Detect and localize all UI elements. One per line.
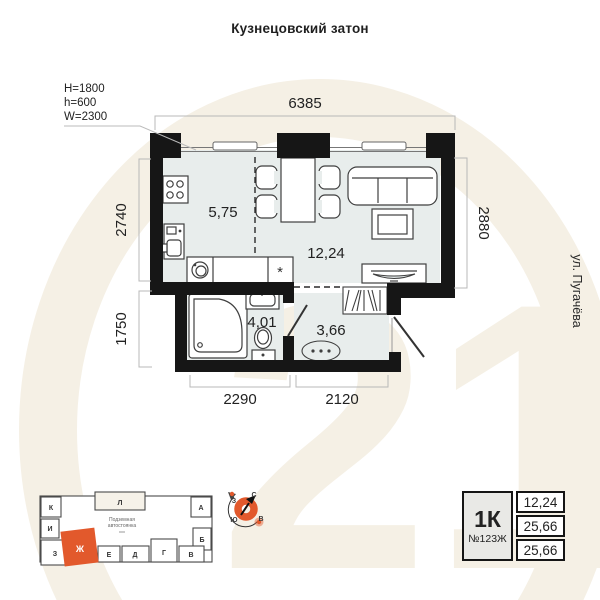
apartment-type: 1К <box>474 508 501 531</box>
wardrobe-icon <box>343 287 387 314</box>
section-label-zh: Ж <box>75 544 85 554</box>
section-label-k: К <box>49 505 54 512</box>
dim-left-upper: 2740 <box>113 203 130 236</box>
chair-icon <box>319 195 340 218</box>
compass-south: Ю <box>230 517 237 524</box>
compass-north: С <box>251 492 256 499</box>
washing-machine-icon <box>192 262 208 278</box>
spec-height: H=1800 <box>64 83 105 95</box>
dim-right: 2880 <box>475 206 492 239</box>
parking-note-line2: автостоянка <box>108 523 137 529</box>
coffee-table <box>372 209 413 239</box>
apartment-type-cell: 1К №123Ж <box>462 491 513 561</box>
dim-top: 6385 <box>288 95 321 112</box>
compass-west: З <box>232 498 237 505</box>
section-label-v: В <box>188 552 193 559</box>
section-label-l: Л <box>118 500 123 507</box>
spec-sill: h=600 <box>64 97 96 109</box>
entrance-door <box>394 317 424 357</box>
street-label: ул. Пугачёва <box>570 254 584 327</box>
kitchen-area-label: 5,75 <box>208 204 237 221</box>
dim-bottom-left: 2290 <box>223 391 256 408</box>
hallway-area-label: 3,66 <box>316 322 345 339</box>
section-label-i: И <box>47 526 52 533</box>
full-area-value: 25,66 <box>516 539 565 561</box>
window-specs: H=1800 h=600 W=2300 <box>64 83 107 123</box>
section-label-d: Д <box>133 552 138 559</box>
dim-bottom-right: 2120 <box>325 391 358 408</box>
compass: С З Ю В <box>228 492 264 527</box>
section-label-z: З <box>53 551 58 558</box>
section-label-g: Г <box>162 550 166 557</box>
dim-left-lower: 1750 <box>113 312 130 345</box>
total-area-value: 25,66 <box>516 515 565 537</box>
spec-width: W=2300 <box>64 111 107 123</box>
stove-icon <box>163 176 188 203</box>
chair-icon <box>256 166 277 189</box>
chair-icon <box>319 166 340 189</box>
dishwasher-star: * <box>277 264 283 281</box>
compass-east: В <box>258 516 263 523</box>
living-area-label: 12,24 <box>307 245 345 262</box>
bathroom-area-label: 4,01 <box>247 314 276 331</box>
floorplan-page: 21 Кузнецовский затон <box>0 0 600 600</box>
apartment-info-table: 1К №123Ж 12,24 25,66 25,66 <box>462 491 565 561</box>
chair-icon <box>256 195 277 218</box>
section-label-b: Б <box>199 537 204 544</box>
tv-stand <box>362 264 426 283</box>
apartment-values: 12,24 25,66 25,66 <box>516 491 565 561</box>
living-area-value: 12,24 <box>516 491 565 513</box>
bathtub-icon <box>189 294 247 358</box>
site-plan: К И З Л А Б Е Д Г В Ж Подземная автостоя… <box>40 492 212 566</box>
section-label-a: А <box>198 505 203 512</box>
sofa <box>348 167 437 205</box>
kitchen-sink-icon <box>162 224 184 259</box>
section-label-e: Е <box>107 552 112 559</box>
apartment-number: №123Ж <box>468 533 506 545</box>
dining-table <box>281 158 315 222</box>
